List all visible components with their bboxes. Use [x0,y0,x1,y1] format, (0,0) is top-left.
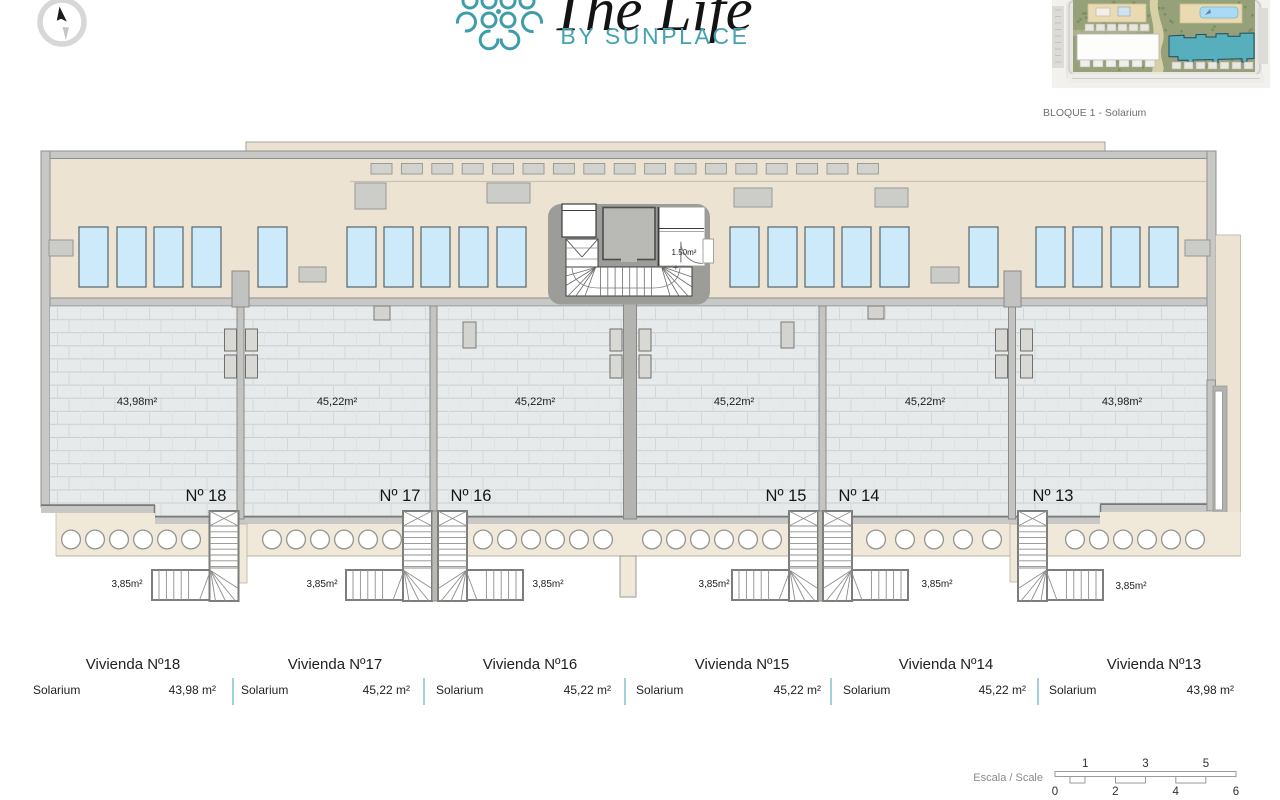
svg-text:Nº 15: Nº 15 [766,487,807,505]
svg-text:45,22m²: 45,22m² [317,396,358,408]
svg-text:45,22m²: 45,22m² [515,396,556,408]
svg-text:45,22m²: 45,22m² [714,396,755,408]
svg-text:4: 4 [1172,786,1179,798]
svg-text:Escala / Scale: Escala / Scale [973,772,1043,784]
svg-text:3,85m²: 3,85m² [532,579,564,590]
svg-text:43,98 m²: 43,98 m² [169,683,216,697]
svg-text:Vivienda Nº14: Vivienda Nº14 [899,656,993,673]
svg-text:3,85m²: 3,85m² [1115,581,1147,592]
svg-text:Vivienda Nº16: Vivienda Nº16 [483,656,577,673]
svg-text:3,85m²: 3,85m² [921,579,953,590]
svg-text:45,22 m²: 45,22 m² [564,683,611,697]
svg-text:Vivienda Nº13: Vivienda Nº13 [1107,656,1201,673]
svg-text:3,85m²: 3,85m² [698,579,730,590]
svg-text:2: 2 [1112,786,1118,798]
svg-text:BLOQUE 1 - Solarium: BLOQUE 1 - Solarium [1043,107,1147,119]
svg-text:3: 3 [1142,758,1148,770]
svg-text:45,22 m²: 45,22 m² [363,683,410,697]
svg-text:Solarium: Solarium [1049,683,1096,697]
svg-text:3,85m²: 3,85m² [306,579,338,590]
svg-text:5: 5 [1203,758,1209,770]
svg-text:45,22 m²: 45,22 m² [774,683,821,697]
svg-text:3,85m²: 3,85m² [111,579,143,590]
svg-text:0: 0 [1052,786,1058,798]
svg-text:Vivienda Nº17: Vivienda Nº17 [288,656,382,673]
svg-text:45,22 m²: 45,22 m² [979,683,1026,697]
svg-text:Vivienda Nº18: Vivienda Nº18 [86,656,180,673]
svg-text:Solarium: Solarium [843,683,890,697]
svg-text:Nº 17: Nº 17 [380,487,421,505]
svg-text:1.50m²: 1.50m² [672,248,697,257]
svg-text:43,98m²: 43,98m² [1102,396,1143,408]
svg-text:45,22m²: 45,22m² [905,396,946,408]
svg-text:Solarium: Solarium [33,683,80,697]
svg-text:Nº 18: Nº 18 [186,487,227,505]
svg-text:43,98m²: 43,98m² [117,396,158,408]
svg-text:Solarium: Solarium [436,683,483,697]
svg-text:Solarium: Solarium [241,683,288,697]
svg-text:Solarium: Solarium [636,683,683,697]
svg-text:Nº 13: Nº 13 [1033,487,1074,505]
svg-text:1: 1 [1082,758,1088,770]
svg-text:6: 6 [1233,786,1239,798]
svg-text:Nº 14: Nº 14 [839,487,880,505]
svg-text:43,98 m²: 43,98 m² [1187,683,1234,697]
svg-text:BY SUNPLACE: BY SUNPLACE [560,23,749,49]
svg-text:Vivienda Nº15: Vivienda Nº15 [695,656,789,673]
svg-text:Nº 16: Nº 16 [451,487,492,505]
